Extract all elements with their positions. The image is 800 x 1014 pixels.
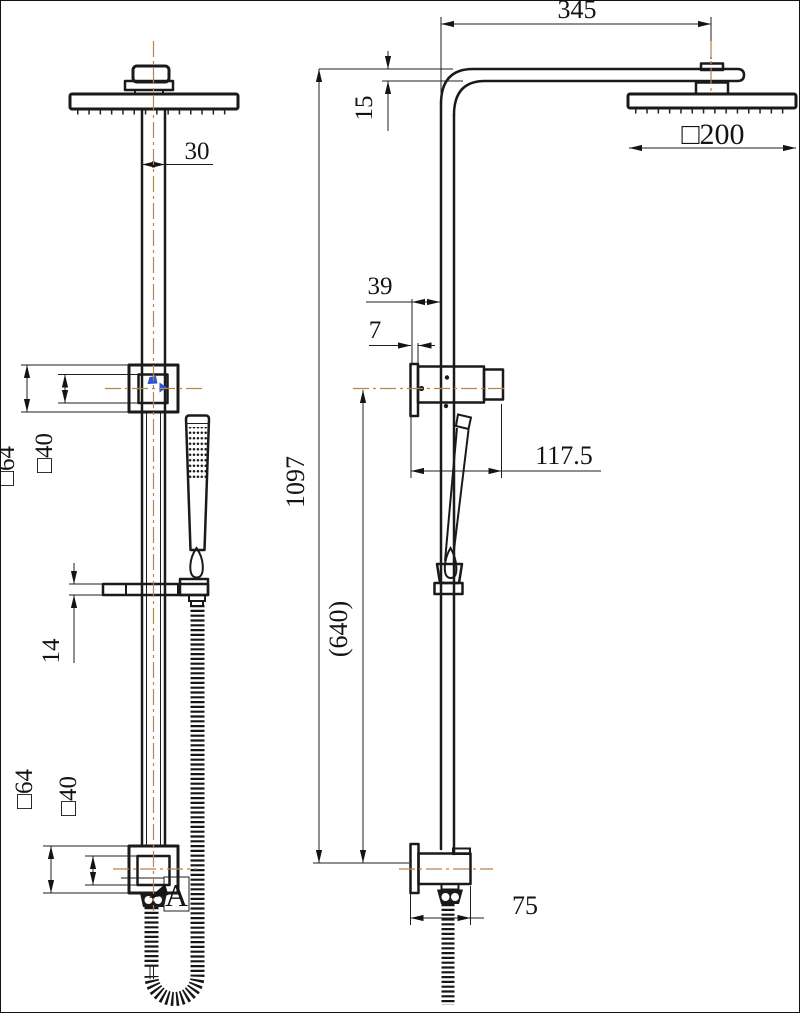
dim-head-size-200: □200 bbox=[629, 118, 796, 151]
dim-text-1097: 1097 bbox=[281, 456, 310, 508]
diverter-bracket-side bbox=[411, 364, 504, 416]
dim-text-345: 345 bbox=[558, 1, 597, 24]
dim-slider-bar-14: 14 bbox=[38, 563, 103, 664]
spray-face bbox=[188, 427, 208, 479]
side-view: 345 15 □200 1097 (640) 39 bbox=[281, 1, 796, 1005]
dim-text-200: □200 bbox=[681, 118, 744, 151]
detail-label: A bbox=[165, 877, 188, 913]
dim-wall-plate-7: 7 bbox=[369, 317, 435, 364]
shower-hose-front bbox=[150, 605, 198, 999]
dim-text-75: 75 bbox=[512, 891, 538, 920]
dim-arm-reach-345: 345 bbox=[441, 1, 711, 101]
dim-text-7: 7 bbox=[369, 317, 382, 344]
dim-lower-depth-75: 75 bbox=[411, 886, 539, 925]
wall-bracket-side bbox=[411, 844, 471, 904]
slider-bar-front bbox=[103, 548, 208, 606]
dim-text-640: (640) bbox=[324, 601, 353, 657]
dim-bracket-spacing-640: (640) bbox=[324, 390, 363, 863]
dim-text-upper-64: □64 bbox=[1, 445, 20, 486]
dim-overall-height-1097: 1097 bbox=[281, 69, 409, 863]
dim-handset-span-117-5: 117.5 bbox=[411, 404, 601, 478]
dim-text-upper-40: □40 bbox=[31, 433, 58, 473]
dim-text-lower-64: □64 bbox=[11, 768, 38, 809]
dim-text-14: 14 bbox=[38, 638, 65, 664]
dim-pipe-width-30: 30 bbox=[142, 138, 213, 165]
overhead-shower-side bbox=[628, 64, 796, 112]
hand-shower-front bbox=[186, 416, 209, 551]
dim-upper-bracket-40: □40 bbox=[31, 375, 138, 474]
dim-text-15: 15 bbox=[351, 96, 378, 121]
hose-nut-side bbox=[437, 890, 463, 905]
drawing-canvas: A 30 □64 □40 14 bbox=[0, 0, 800, 1013]
dim-text-117-5: 117.5 bbox=[535, 441, 593, 470]
dim-text-lower-40: □40 bbox=[55, 776, 82, 816]
handset-holder-front bbox=[180, 579, 208, 595]
handset-tip bbox=[190, 548, 203, 578]
dim-text-39: 39 bbox=[368, 273, 393, 300]
front-view: A 30 □64 □40 14 bbox=[1, 41, 238, 999]
centerlines-side bbox=[353, 41, 711, 869]
dim-text-30: 30 bbox=[185, 138, 210, 165]
technical-drawing: A 30 □64 □40 14 bbox=[1, 1, 800, 1014]
